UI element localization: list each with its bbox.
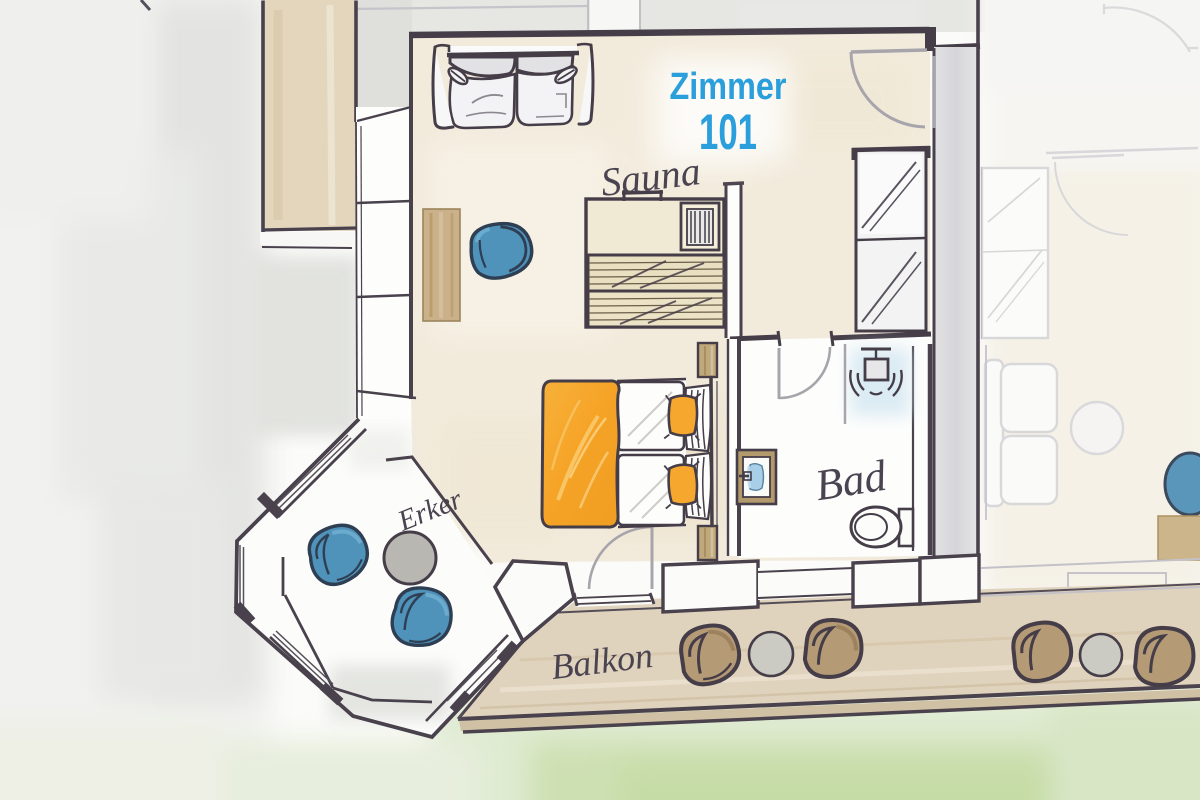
svg-text:Zimmer: Zimmer — [670, 66, 787, 108]
svg-text:101: 101 — [699, 104, 757, 160]
